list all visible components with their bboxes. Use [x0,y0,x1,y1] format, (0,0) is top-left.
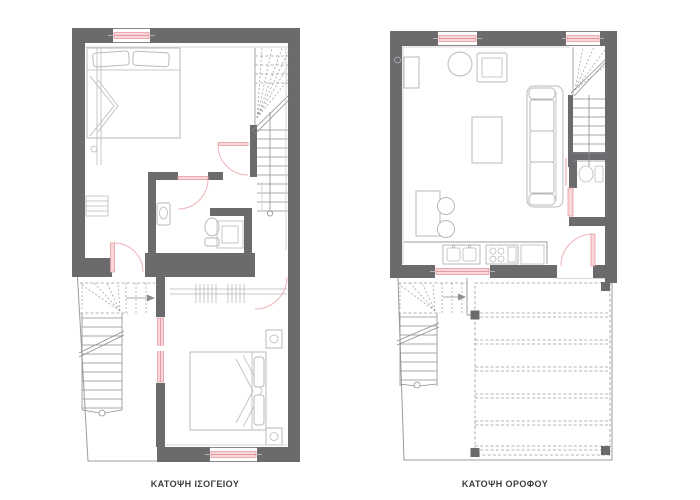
window-icon [430,269,495,275]
staircase-upper-right [252,48,288,216]
wardrobe-rail-icon [170,284,287,303]
courtyard-outline [78,277,158,461]
floor-plans-drawing: ΚΑΤΟΨΗ ΙΣΟΓΕΙΟΥ ΚΑΤΟΨΗ ΟΡΟΦΟΥ [0,0,700,500]
shelf-icon [86,196,108,216]
staircase-lower-left [79,283,155,416]
staircase-lower-left [397,283,467,388]
upper-floor-plan [390,31,617,460]
sofa-icon [527,86,563,207]
staircase-upper-right [571,47,605,166]
window-icon [205,452,262,458]
bathroom-fixtures [579,166,603,182]
door-icon [178,177,208,210]
coffee-table-icon [472,117,502,163]
ground-floor-plan [72,28,300,462]
dining-table-icon [416,191,455,238]
floor-plans-canvas: ΚΑΤΟΨΗ ΙΣΟΓΕΙΟΥ ΚΑΤΟΨΗ ΟΡΟΦΟΥ [0,0,700,500]
door-icon [218,143,248,176]
window-icon [108,33,155,39]
door-icon [255,277,287,309]
roof-terrace [398,278,612,460]
double-bed-icon [166,330,287,445]
round-table-icon [448,52,472,76]
ground-floor-label: ΚΑΤΟΨΗ ΙΣΟΓΕΙΟΥ [151,479,239,489]
door-icon [561,234,595,266]
kitchen-counter [404,242,547,264]
window-icon [157,318,165,382]
window-icon [562,36,604,42]
double-bed-icon [87,48,180,165]
door-icon [111,243,144,272]
upper-floor-label: ΚΑΤΟΨΗ ΟΡΟΦΟΥ [462,479,548,489]
window-icon [433,36,482,42]
armchair-icon [477,53,507,82]
